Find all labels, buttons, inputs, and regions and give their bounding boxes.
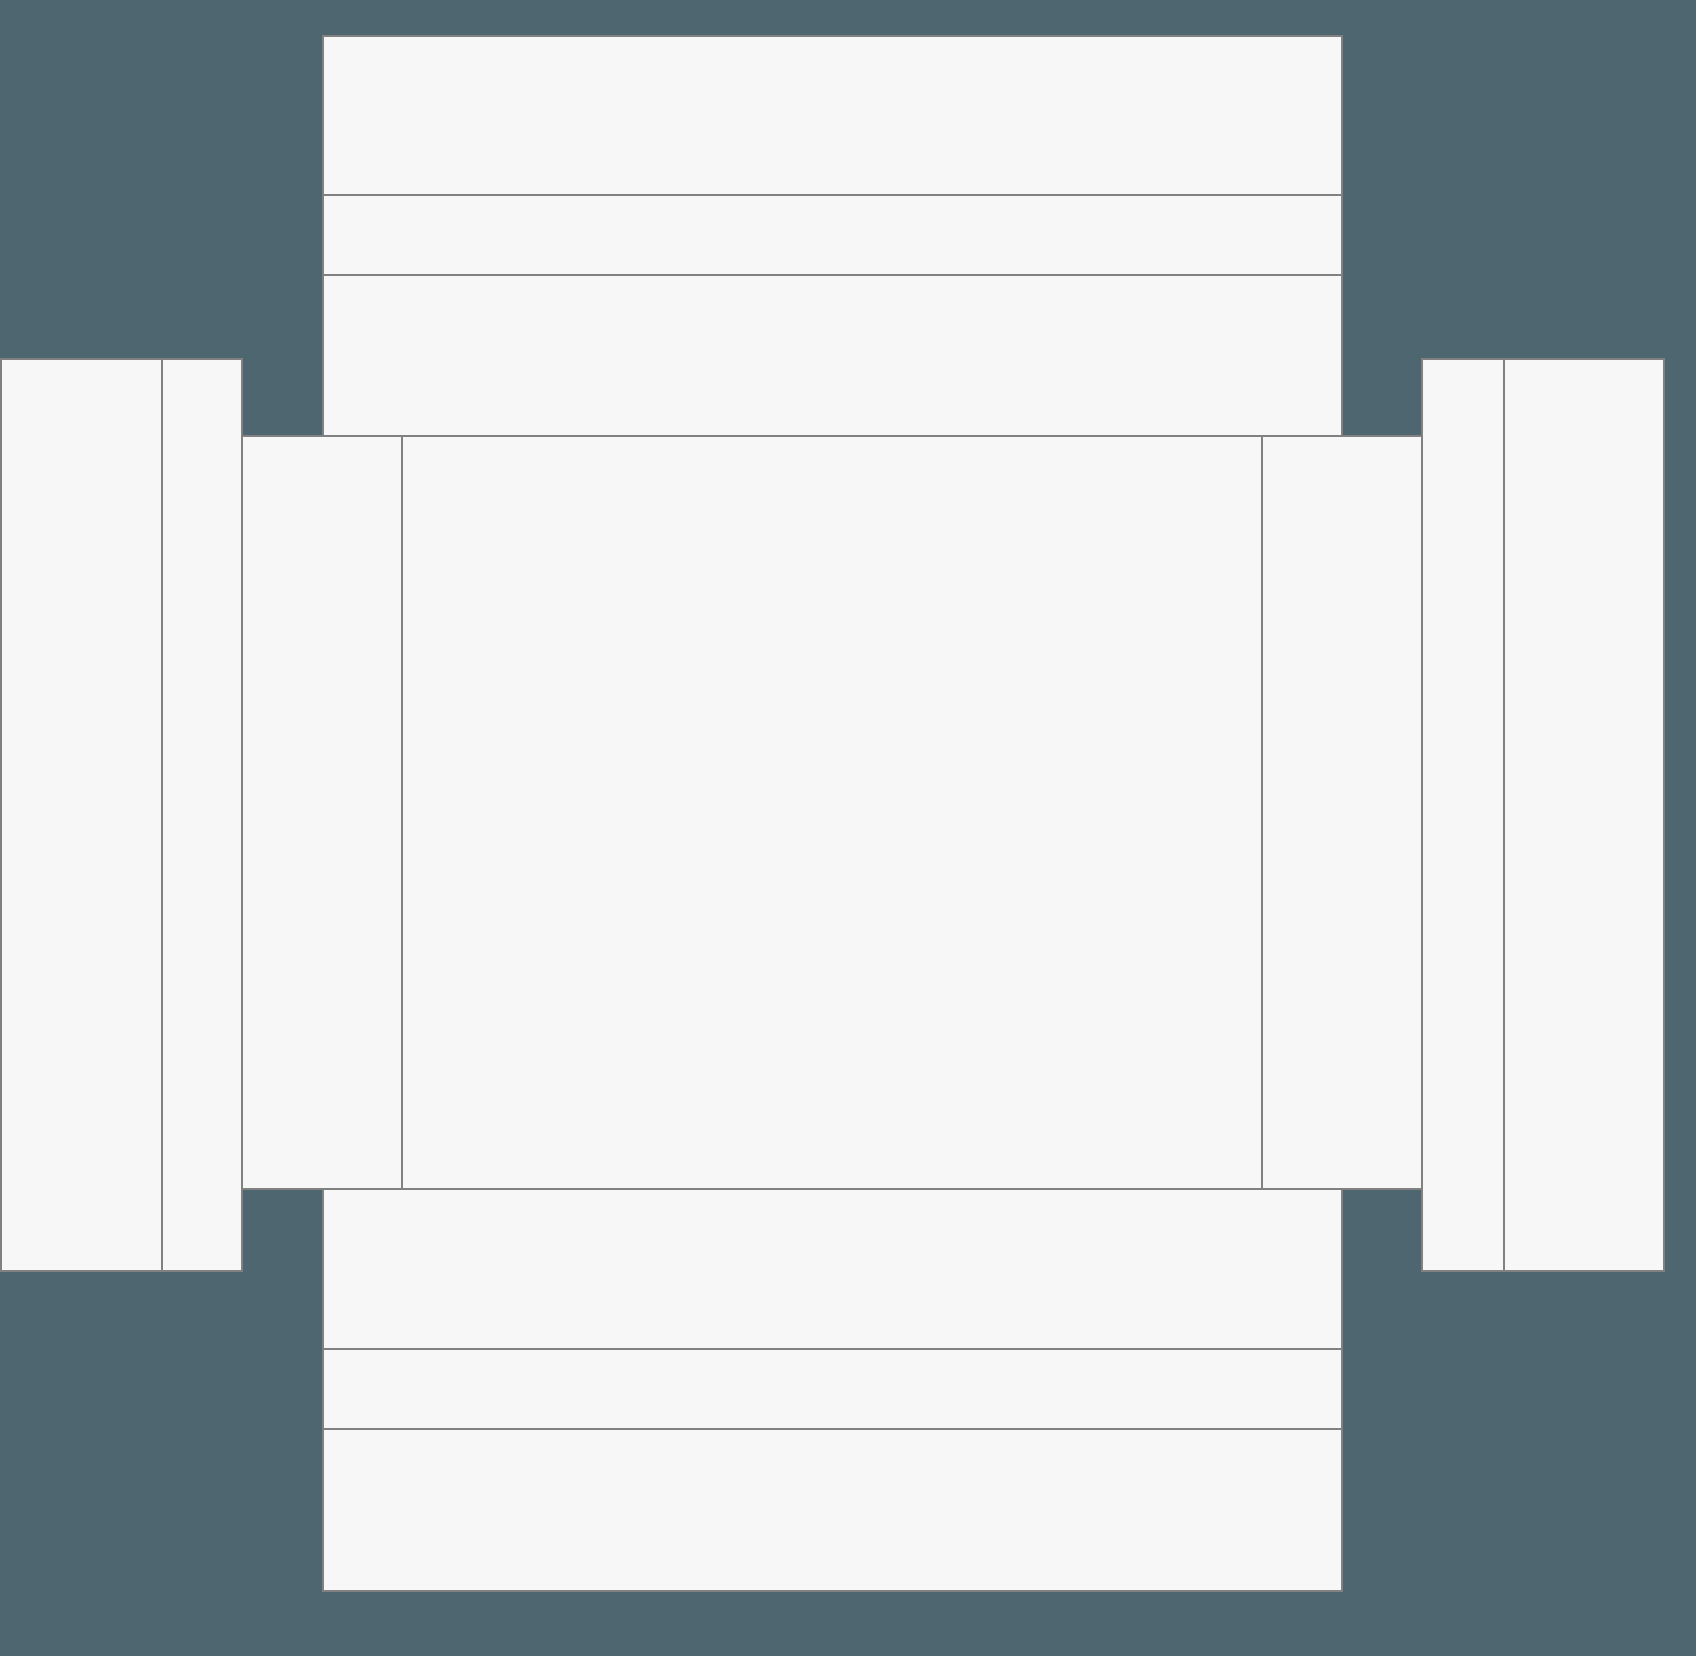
left-outer-strip [0,358,163,1272]
left-side-flap [241,435,403,1190]
center-main-panel [401,435,1263,1190]
right-inner-strip [1421,358,1505,1272]
bottom-block-lower-crease [322,1428,1343,1430]
right-outer-strip [1503,358,1665,1272]
right-side-flap [1261,435,1423,1190]
bottom-block-upper-crease [322,1348,1343,1350]
top-block-lower-crease [322,274,1343,276]
left-inner-strip [161,358,243,1272]
top-flap-block [322,35,1343,439]
top-block-upper-crease [322,194,1343,196]
bottom-flap-block [322,1186,1343,1592]
dieline-canvas [0,0,1696,1656]
